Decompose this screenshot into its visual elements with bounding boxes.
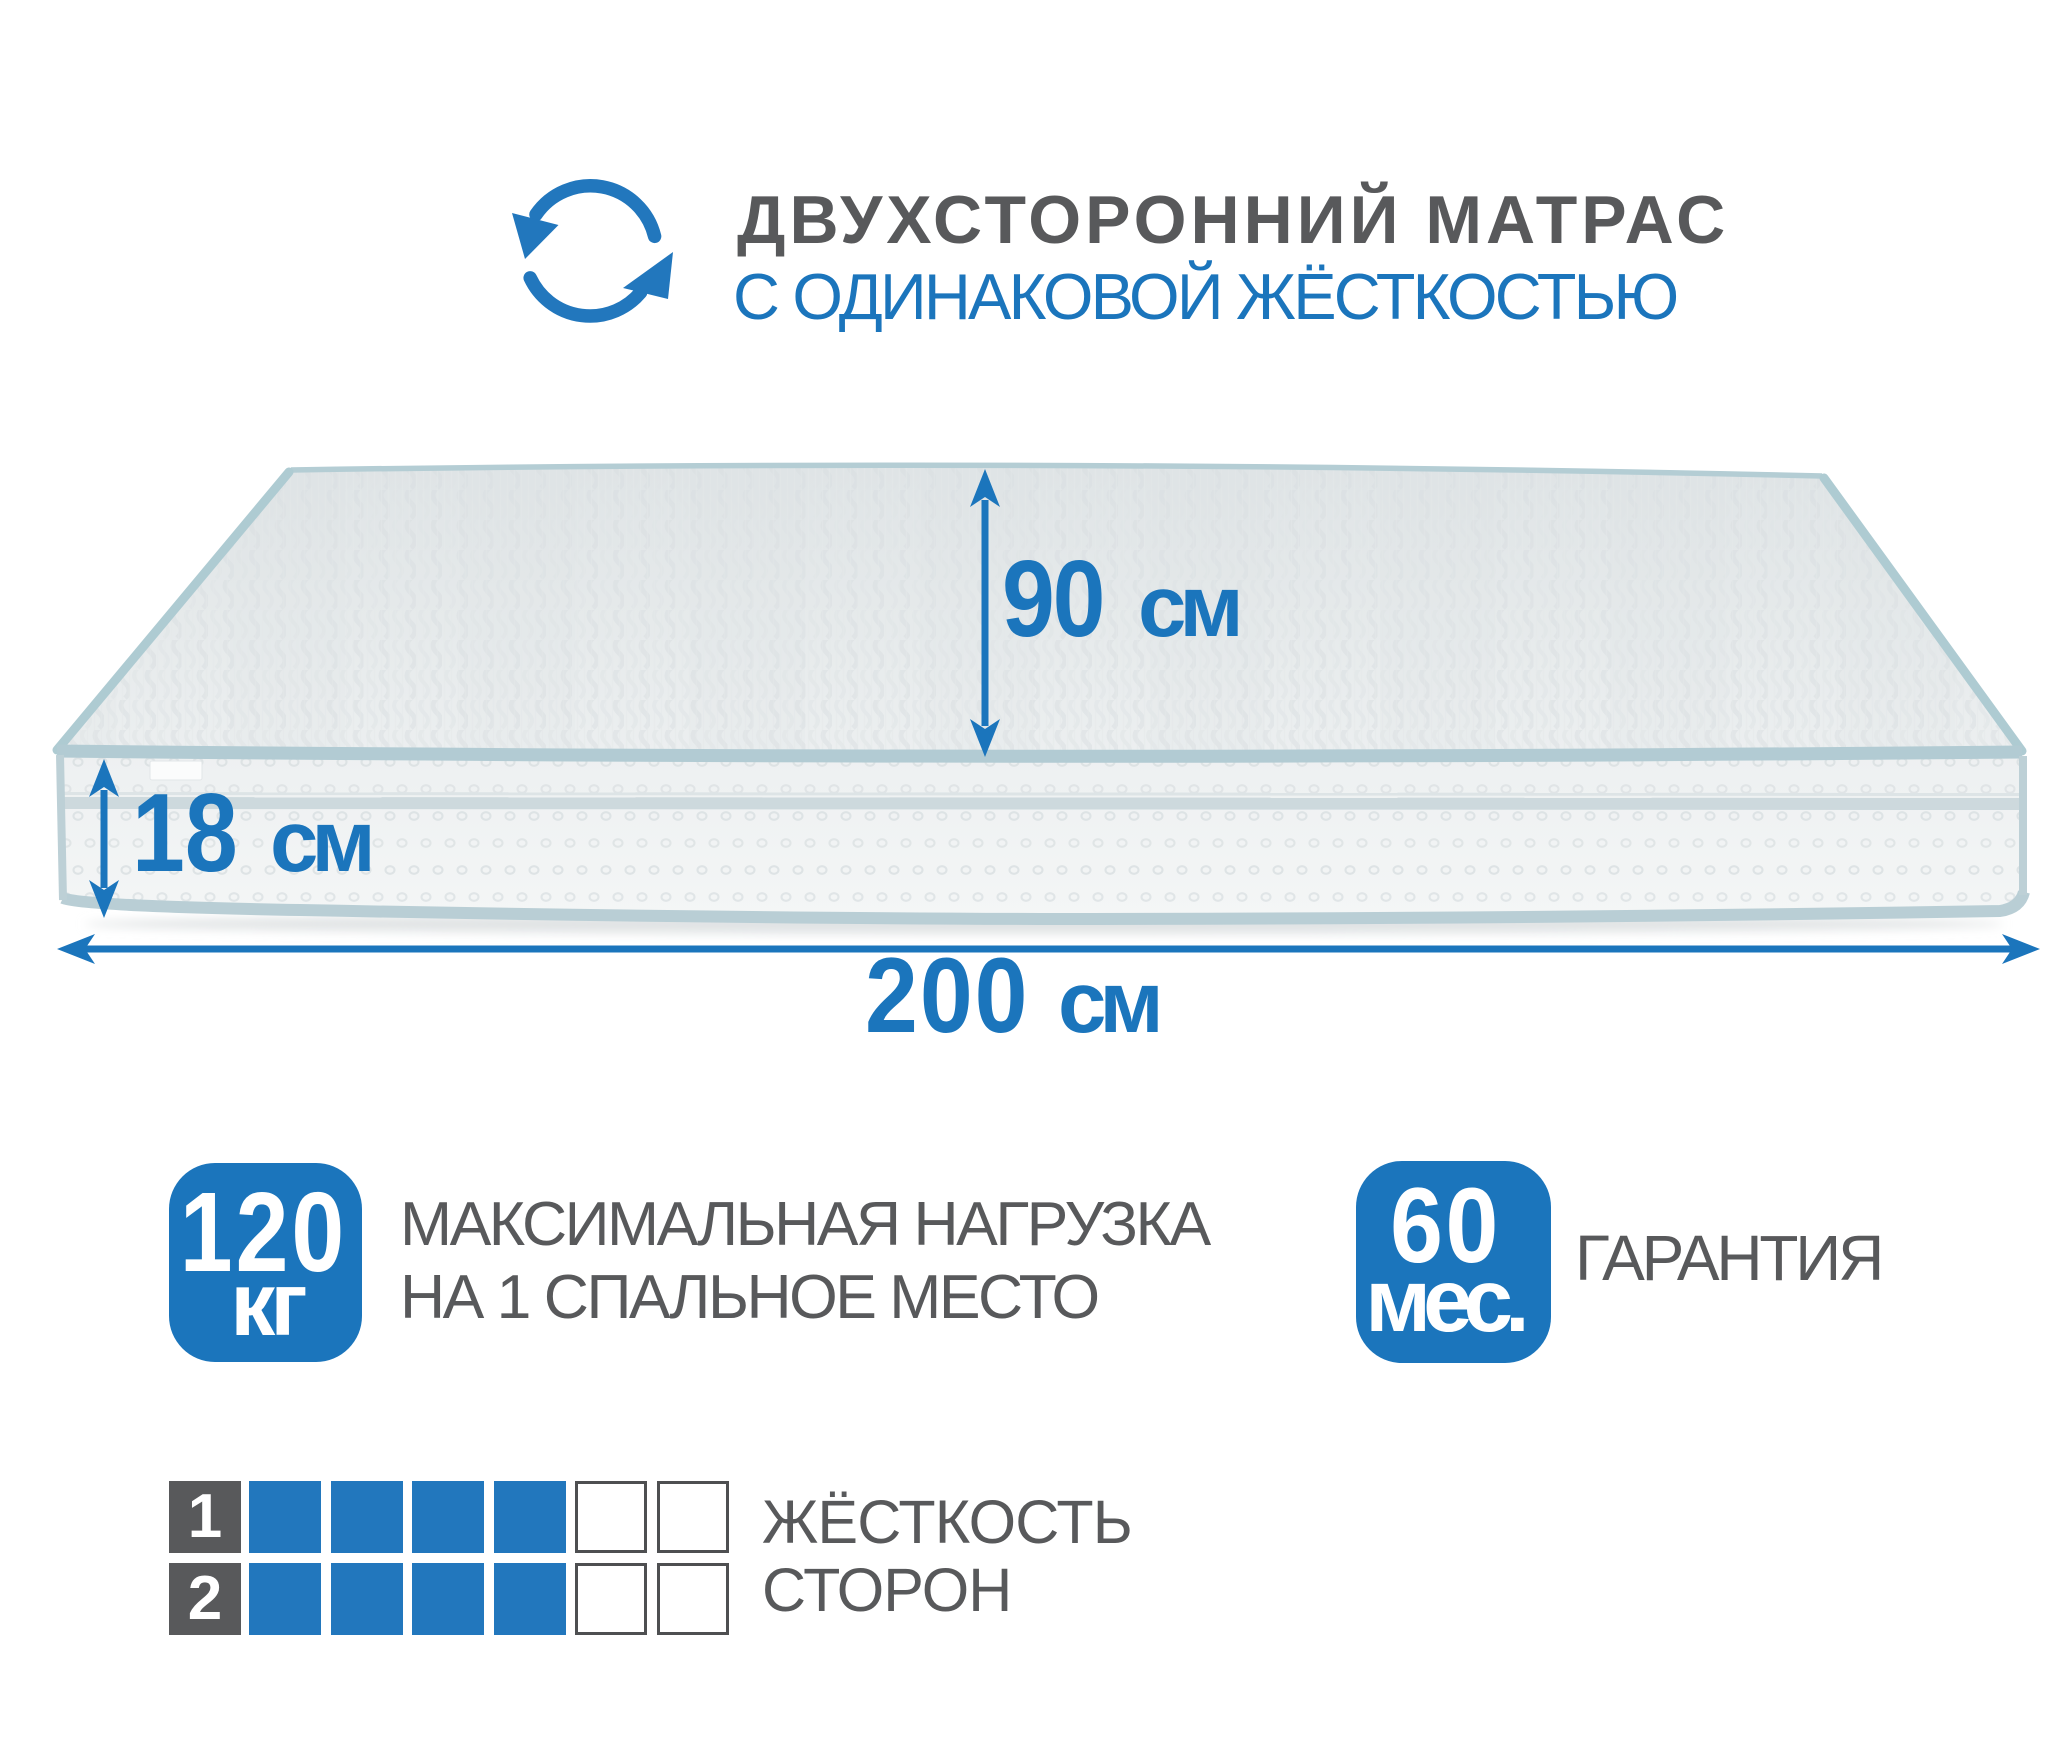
svg-text:18: 18 <box>132 770 238 895</box>
svg-text:90: 90 <box>1002 538 1103 659</box>
svg-text:см: см <box>270 793 370 890</box>
svg-text:см: см <box>1058 954 1158 1051</box>
svg-text:200: 200 <box>865 937 1030 1055</box>
svg-text:см: см <box>1138 558 1238 655</box>
